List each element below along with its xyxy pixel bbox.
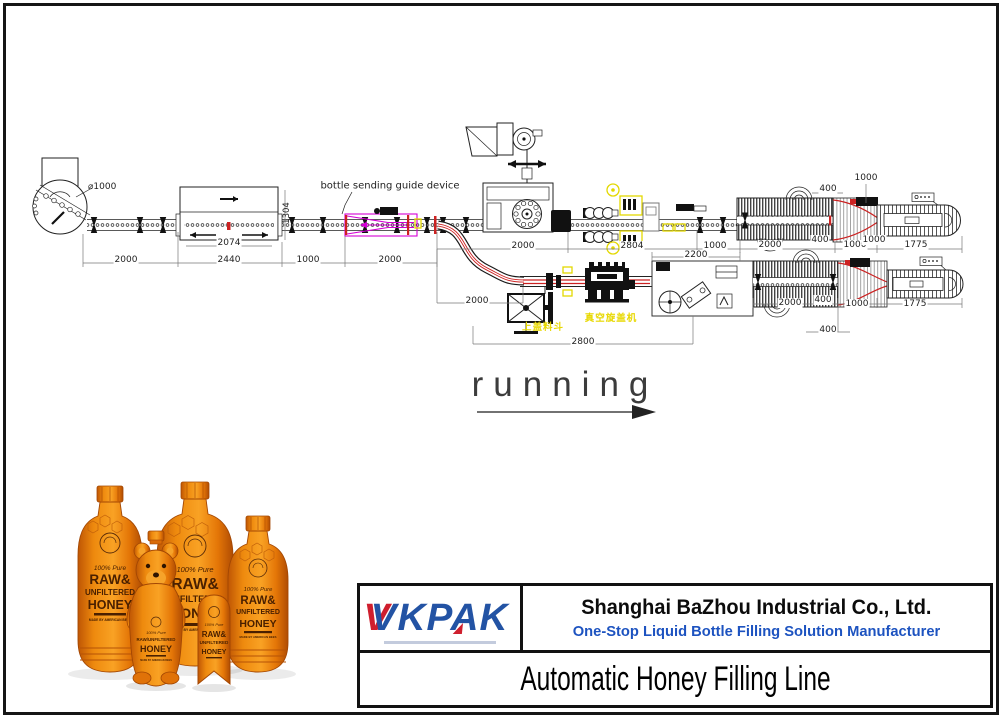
footer-title-row: Automatic Honey Filling Line (360, 653, 990, 705)
dimension-label: 2000 (114, 255, 139, 265)
svg-text:100% Pure: 100% Pure (94, 565, 127, 572)
honey-products-photo: 100% Pure RAW& UNFILTERED HONEY MADE BY … (68, 482, 296, 692)
dimension-label: 1000 (854, 173, 879, 183)
logo-underline (384, 641, 496, 644)
dimension-label: 1000 (296, 255, 321, 265)
logo-cell: V VKPAK (360, 586, 523, 650)
honey-bottle-right: 100% Pure RAW& UNFILTERED HONEY MADE BY … (228, 516, 288, 672)
product-title: Automatic Honey Filling Line (520, 660, 830, 699)
roller-conveyor-top (877, 193, 960, 236)
svg-text:HONEY: HONEY (88, 598, 133, 612)
dimension-label: 2074 (217, 238, 242, 248)
dimension-label: 400 (813, 295, 832, 305)
running-direction-arrow (477, 405, 656, 419)
guide-device-label: bottle sending guide device (320, 181, 459, 192)
svg-text:RAW/UNFILTERED: RAW/UNFILTERED (137, 637, 176, 642)
svg-text:RAW&: RAW& (171, 576, 218, 593)
svg-text:100% Pure: 100% Pure (146, 630, 167, 635)
running-label: running (472, 365, 659, 405)
svg-text:UNFILTERED: UNFILTERED (200, 640, 229, 645)
dimension-label: 1775 (904, 240, 929, 250)
rotary-unscrambler-turntable (33, 158, 93, 234)
dimension-label: 2000 (511, 241, 536, 251)
svg-text:UNFILTERED: UNFILTERED (236, 609, 280, 616)
svg-text:HONEY: HONEY (202, 649, 227, 656)
footer-info-table: V VKPAK Shanghai BaZhou Industrial Co., … (357, 583, 993, 708)
dimension-label: 2200 (684, 250, 709, 260)
company-name: Shanghai BaZhou Industrial Co., Ltd. (581, 596, 931, 620)
dimension-label: 400 (818, 325, 837, 335)
svg-text:HONEY: HONEY (140, 644, 172, 654)
dimension-label: 2000 (465, 296, 490, 306)
svg-text:100% Pure: 100% Pure (176, 565, 213, 574)
svg-text:MADE BY AMERICAN BEES: MADE BY AMERICAN BEES (140, 659, 172, 662)
svg-text:RAW&: RAW& (89, 572, 130, 587)
vacuum-capping-machine (585, 262, 635, 303)
svg-text:RAW&: RAW& (202, 630, 227, 639)
svg-text:HONEY: HONEY (239, 618, 276, 630)
dimension-label: 2000 (758, 240, 783, 250)
svg-text:100% Pure: 100% Pure (244, 587, 273, 593)
svg-text:MADE BY AMERICAN BEES: MADE BY AMERICAN BEES (89, 618, 131, 622)
capping-machine (483, 183, 571, 232)
vkpak-logo: V VKPAK (371, 597, 509, 640)
dimension-label: 1775 (903, 299, 928, 309)
dimension-label: 400 (810, 235, 829, 245)
dimension-label: 2800 (571, 337, 596, 347)
roller-conveyor-bottom (887, 257, 963, 298)
dimension-label: 2000 (378, 255, 403, 265)
rinsing-machine (176, 187, 282, 240)
cap-elevator (466, 123, 546, 185)
company-tagline: One-Stop Liquid Bottle Filling Solution … (573, 623, 940, 640)
dimension-label: 2440 (217, 255, 242, 265)
turntable-diameter-label: ⌀1000 (88, 182, 116, 192)
dimension-label: 2000 (778, 298, 803, 308)
logo-text: VKPAK (371, 597, 509, 639)
dimension-label: 2804 (620, 241, 645, 251)
svg-text:100% Pure: 100% Pure (205, 623, 224, 627)
machine-side-dimension-label: 1304 (282, 202, 292, 224)
svg-text:RAW&: RAW& (240, 595, 275, 607)
svg-text:UNFILTERED: UNFILTERED (85, 588, 135, 597)
brochure-page: 100% Pure RAW& UNFILTERED HONEY MADE BY … (0, 0, 1000, 715)
dimension-label: 1000 (862, 235, 887, 245)
cap-feeder-chinese-label: 上盖料斗 (522, 319, 564, 333)
guide-label-leader (342, 192, 352, 214)
dimension-label: 400 (818, 184, 837, 194)
dimension-label: 1000 (845, 299, 870, 309)
labeling-machine (652, 261, 753, 316)
filling-capping-units (583, 184, 706, 254)
honey-sachet: 100% Pure RAW& UNFILTERED HONEY (198, 595, 230, 684)
vacuum-capper-chinese-label: 真空旋盖机 (585, 310, 638, 324)
svg-text:MADE BY AMERICAN BEES: MADE BY AMERICAN BEES (240, 635, 277, 639)
footer-top-row: V VKPAK Shanghai BaZhou Industrial Co., … (360, 586, 990, 653)
company-cell: Shanghai BaZhou Industrial Co., Ltd. One… (523, 586, 990, 650)
